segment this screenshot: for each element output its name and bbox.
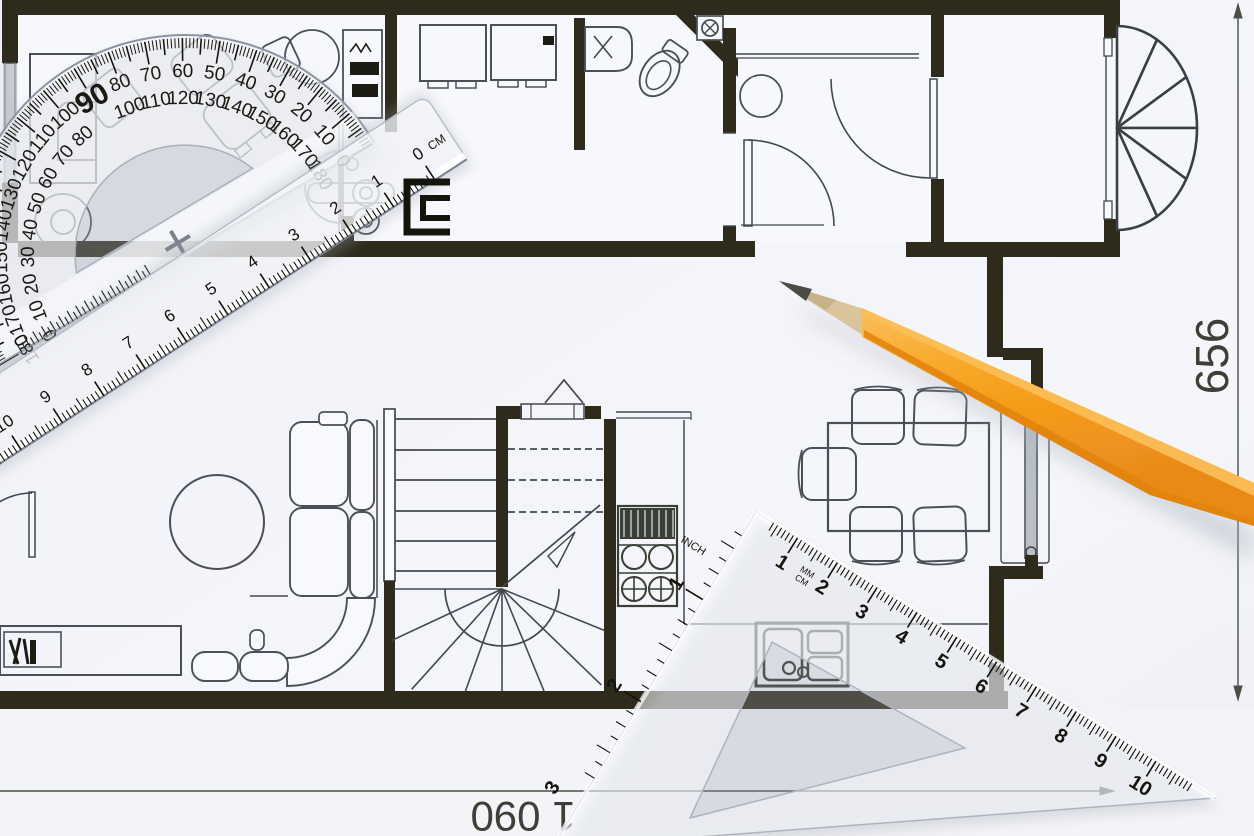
svg-text:40: 40 — [18, 218, 42, 242]
svg-text:656: 656 — [1186, 318, 1238, 395]
svg-text:50: 50 — [202, 62, 226, 86]
svg-text:20: 20 — [19, 272, 44, 297]
svg-text:150: 150 — [0, 241, 12, 273]
svg-text:1 090: 1 090 — [470, 793, 575, 836]
svg-text:70: 70 — [139, 62, 164, 87]
svg-text:30: 30 — [18, 246, 39, 267]
svg-text:60: 60 — [172, 61, 193, 82]
